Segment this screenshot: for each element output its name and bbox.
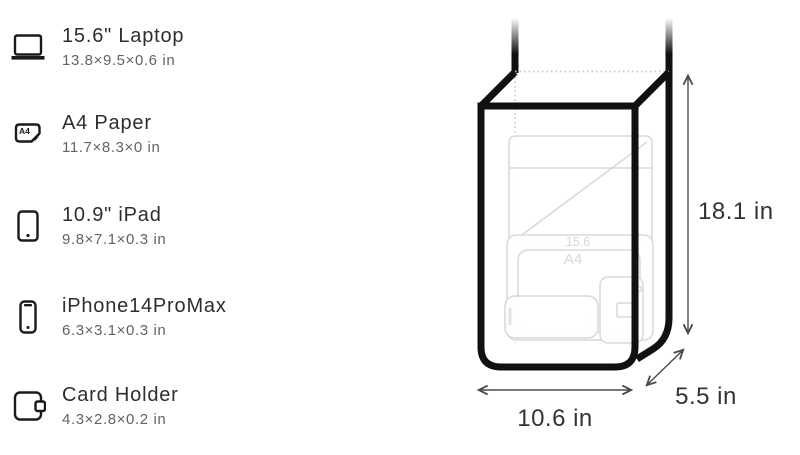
bag-strap-left (512, 18, 519, 73)
bag-dimension-illustration: 15.6 A4 18.1 in 10.6 in 5.5 in (440, 0, 800, 455)
list-item-ipad: 10.9" iPad 9.8×7.1×0.3 in (10, 198, 166, 254)
item-name: Card Holder (62, 384, 179, 407)
sketch-card-holder (505, 296, 598, 338)
depth-arrow (647, 350, 683, 385)
list-item-laptop: 15.6" Laptop 13.8×9.5×0.6 in (10, 19, 184, 75)
iphone-icon (10, 299, 46, 335)
list-item-a4-paper: A4 A4 Paper 11.7×8.3×0 in (10, 106, 160, 162)
item-name: 10.9" iPad (62, 204, 166, 227)
interior-paper-label: A4 (564, 251, 582, 268)
list-item-card-holder: Card Holder 4.3×2.8×0.2 in (10, 378, 179, 434)
depth-dimension-label: 5.5 in (675, 383, 737, 410)
item-dimensions: 4.3×2.8×0.2 in (62, 411, 179, 428)
card-holder-icon (10, 388, 46, 424)
ipad-icon (10, 208, 46, 244)
item-dimensions: 9.8×7.1×0.3 in (62, 231, 166, 248)
a4-icon-label: A4 (19, 126, 30, 136)
item-dimensions: 11.7×8.3×0 in (62, 139, 160, 156)
height-dimension-label: 18.1 in (698, 198, 774, 225)
bag-top-left-edge (481, 72, 515, 106)
item-name: 15.6" Laptop (62, 25, 184, 48)
width-dimension-label: 10.6 in (517, 405, 593, 432)
interior-laptop-label: 15.6 (566, 235, 590, 249)
item-name: A4 Paper (62, 112, 160, 135)
a4-paper-icon: A4 (10, 116, 46, 152)
list-item-iphone: iPhone14ProMax 6.3×3.1×0.3 in (10, 289, 227, 345)
laptop-icon (10, 29, 46, 65)
item-dimensions: 13.8×9.5×0.6 in (62, 52, 184, 69)
bag-top-right-edge (635, 72, 669, 106)
item-name: iPhone14ProMax (62, 295, 227, 318)
bag-size-comparison-diagram: 15.6" Laptop 13.8×9.5×0.6 in A4 A4 Paper… (0, 0, 800, 455)
sketch-card-slot (509, 308, 512, 325)
bag-interior-items-sketch: 15.6 A4 (505, 136, 653, 343)
bag-strap-right (666, 18, 673, 73)
item-dimensions: 6.3×3.1×0.3 in (62, 322, 227, 339)
